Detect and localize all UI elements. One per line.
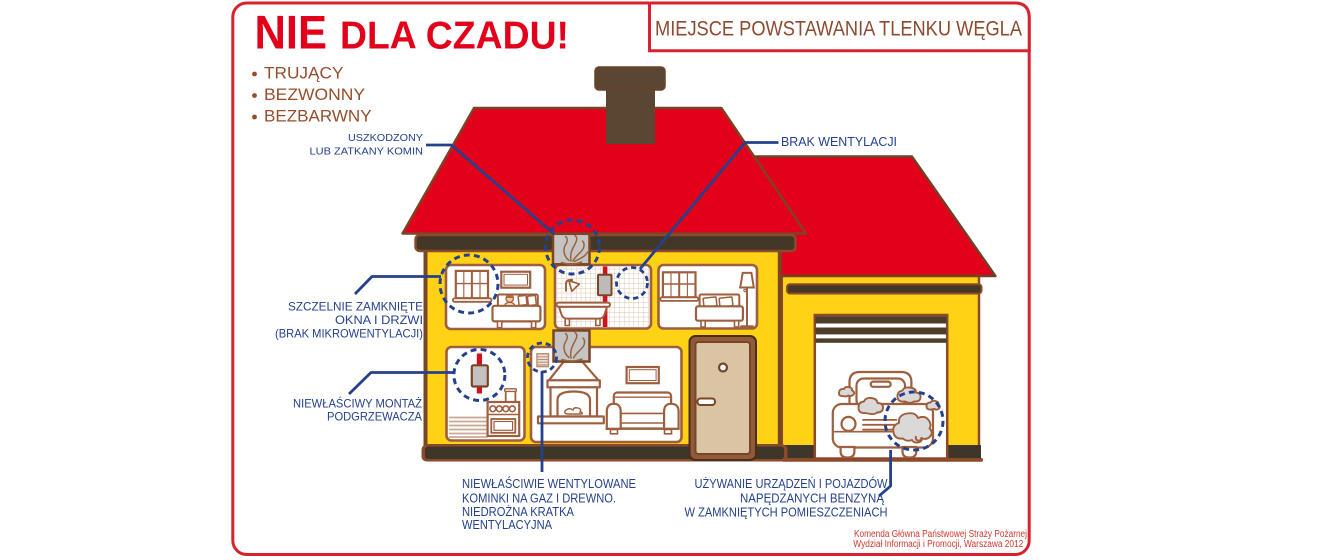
svg-text:LUB ZATKANY KOMIN: LUB ZATKANY KOMIN (310, 147, 424, 158)
svg-text:PODGRZEWACZA: PODGRZEWACZA (327, 410, 422, 424)
svg-text:MIEJSCE POWSTAWANIA TLENKU WĘG: MIEJSCE POWSTAWANIA TLENKU WĘGLA (655, 17, 1023, 41)
svg-text:NIEDROŻNA KRATKA: NIEDROŻNA KRATKA (462, 505, 575, 519)
svg-text:TRUJĄCY: TRUJĄCY (264, 64, 344, 83)
svg-text:UŻYWANIE URZĄDZEŃ I POJAZDÓW: UŻYWANIE URZĄDZEŃ I POJAZDÓW (695, 476, 888, 491)
svg-text:Wydział Informacji i Promocji,: Wydział Informacji i Promocji, Warszawa … (853, 539, 1023, 550)
svg-text:NAPĘDZANYCH BENZYNĄ: NAPĘDZANYCH BENZYNĄ (740, 492, 885, 506)
svg-text:KOMINKI NA GAZ I DREWNO.: KOMINKI NA GAZ I DREWNO. (462, 492, 616, 506)
svg-text:(BRAK MIKROWENTYLACJI): (BRAK MIKROWENTYLACJI) (275, 327, 423, 341)
svg-text:BRAK WENTYLACJI: BRAK WENTYLACJI (781, 134, 897, 149)
svg-text:NIEWŁAŚCIWY MONTAŻ: NIEWŁAŚCIWY MONTAŻ (293, 395, 422, 410)
svg-text:BEZWONNY: BEZWONNY (264, 85, 365, 104)
svg-text:SZCZELNIE ZAMKNIĘTE: SZCZELNIE ZAMKNIĘTE (288, 300, 423, 314)
svg-text:W ZAMKNIĘTYCH POMIESZCZENIACH: W ZAMKNIĘTYCH POMIESZCZENIACH (685, 505, 888, 519)
svg-text:DLA CZADU!: DLA CZADU! (340, 15, 569, 58)
svg-text:WENTYLACYJNA: WENTYLACYJNA (462, 518, 553, 532)
svg-text:OKNA I DRZWI: OKNA I DRZWI (335, 313, 423, 327)
svg-text:NIE: NIE (255, 6, 328, 59)
svg-text:NIEWŁAŚCIWIE WENTYLOWANE: NIEWŁAŚCIWIE WENTYLOWANE (462, 476, 636, 491)
svg-text:USZKODZONY: USZKODZONY (348, 133, 423, 144)
svg-text:BEZBARWNY: BEZBARWNY (264, 107, 372, 126)
